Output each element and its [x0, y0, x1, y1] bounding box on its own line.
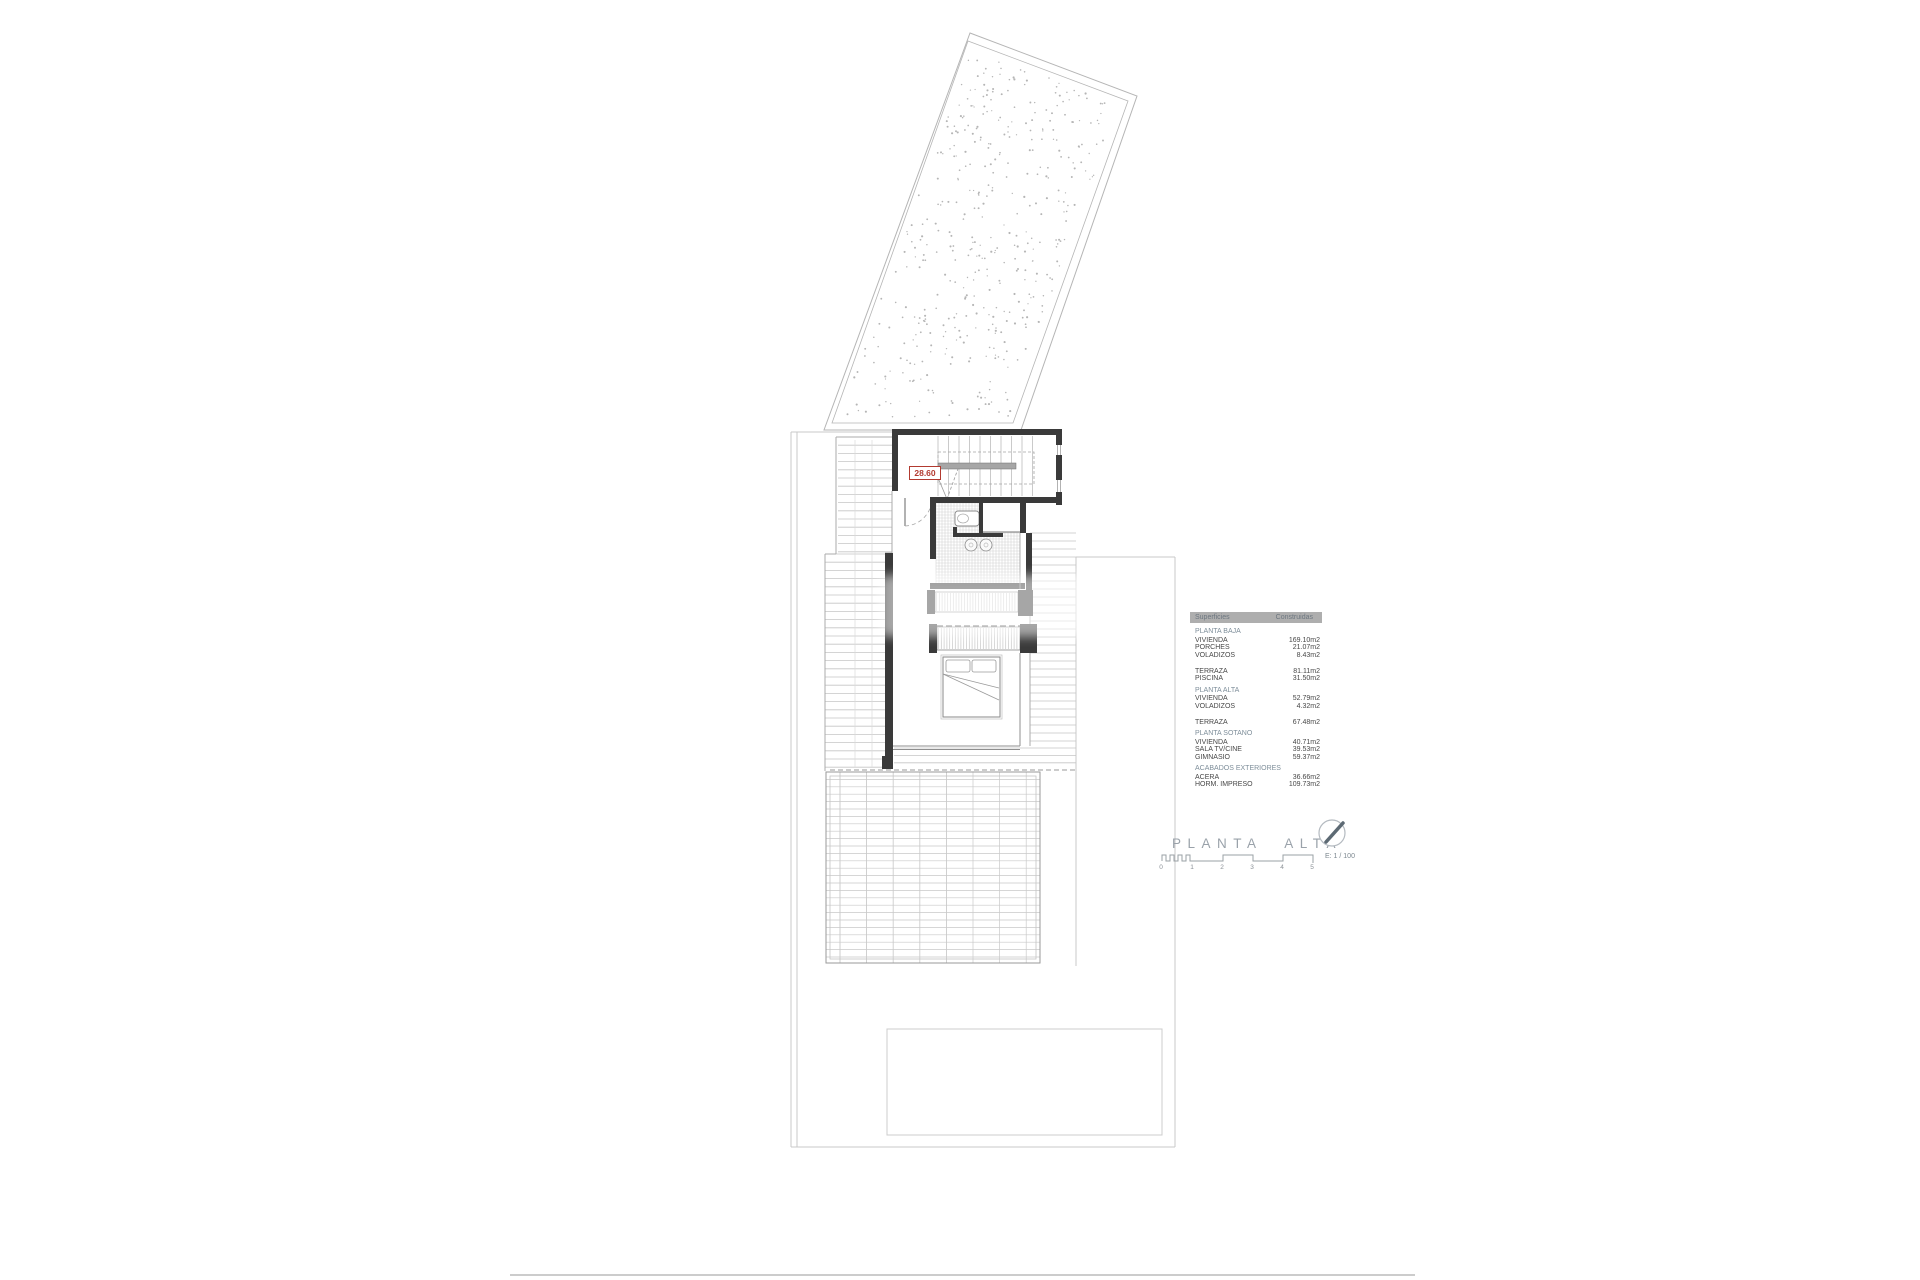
areas-table-col1: Superficies: [1195, 614, 1230, 621]
floor-plan-svg: PLANTA ALTA 0 1 2 3 4 5 E: 1 / 100: [0, 0, 1920, 1280]
tiled-terrace-outer-border: [826, 772, 1040, 963]
sloped-plot: [824, 33, 1137, 430]
table-row: PORCHES21.07m2: [1190, 644, 1322, 651]
svg-text:4: 4: [1280, 864, 1284, 871]
bed: [941, 655, 1002, 719]
scale-bar: [1162, 855, 1313, 863]
scale-tick-labels: 0 1 2 3 4 5: [1159, 864, 1314, 871]
tiled-terrace-inner-border: [830, 776, 1036, 959]
table-row: SALA TV/CINE39.53m2: [1190, 746, 1322, 753]
table-group-terraza-piscina: TERRAZA81.11m2 PISCINA31.50m2: [1190, 668, 1322, 683]
svg-text:1: 1: [1190, 864, 1194, 871]
pool-outline: [887, 1029, 1162, 1135]
sink: [980, 539, 992, 551]
svg-text:0: 0: [1159, 864, 1163, 871]
table-group-planta-alta: PLANTA ALTA VIVIENDA52.79m2 VOLADIZOS4.3…: [1190, 687, 1322, 710]
pillow: [946, 660, 970, 672]
lower-tiled-terrace: [826, 772, 1040, 963]
stair-handrail: [938, 463, 1016, 469]
table-row: VOLADIZOS4.32m2: [1190, 703, 1322, 710]
sink: [965, 539, 977, 551]
areas-table: Superficies Construidas PLANTA BAJA VIVI…: [1190, 612, 1322, 788]
level-elevation-label: 28.60: [909, 466, 941, 480]
areas-table-col2: Construidas: [1276, 614, 1313, 621]
door-swing: [905, 498, 932, 526]
table-row: VIVIENDA169.10m2: [1190, 637, 1322, 644]
table-row: TERRAZA67.48m2: [1190, 719, 1322, 726]
scale-ratio-label: E: 1 / 100: [1325, 853, 1355, 860]
svg-text:2: 2: [1220, 864, 1224, 871]
table-row: VIVIENDA40.71m2: [1190, 739, 1322, 746]
vanity-counter: [953, 533, 1003, 537]
table-row: HORM. IMPRESO109.73m2: [1190, 781, 1322, 788]
left-terrace-joints: [855, 440, 872, 768]
shower-compartment: [983, 503, 1020, 532]
areas-table-header: Superficies Construidas: [1190, 612, 1322, 623]
svg-text:3: 3: [1250, 864, 1254, 871]
table-group-terraza-alta: TERRAZA67.48m2: [1190, 719, 1322, 726]
table-row: VIVIENDA52.79m2: [1190, 695, 1322, 702]
title-block: PLANTA ALTA 0 1 2 3 4 5 E: 1 / 100: [1159, 820, 1355, 871]
lower-band-decking: [894, 748, 1076, 763]
pillow: [972, 660, 996, 672]
table-row: VOLADIZOS8.43m2: [1190, 652, 1322, 659]
table-group-planta-baja: PLANTA BAJA VIVIENDA169.10m2 PORCHES21.0…: [1190, 628, 1322, 659]
plan-title: PLANTA ALTA: [1172, 836, 1342, 851]
table-group-acabados: ACABADOS EXTERIORES ACERA36.66m2 HORM. I…: [1190, 765, 1322, 788]
table-row: GIMNASIO59.37m2: [1190, 754, 1322, 761]
table-group-planta-sotano: PLANTA SOTANO VIVIENDA40.71m2 SALA TV/CI…: [1190, 730, 1322, 761]
drawing-sheet: PLANTA ALTA 0 1 2 3 4 5 E: 1 / 100 28.60…: [0, 0, 1920, 1280]
table-row: TERRAZA81.11m2: [1190, 668, 1322, 675]
watermark: [880, 575, 1100, 637]
svg-text:5: 5: [1310, 864, 1314, 871]
table-row: PISCINA31.50m2: [1190, 675, 1322, 682]
table-row: ACERA36.66m2: [1190, 774, 1322, 781]
